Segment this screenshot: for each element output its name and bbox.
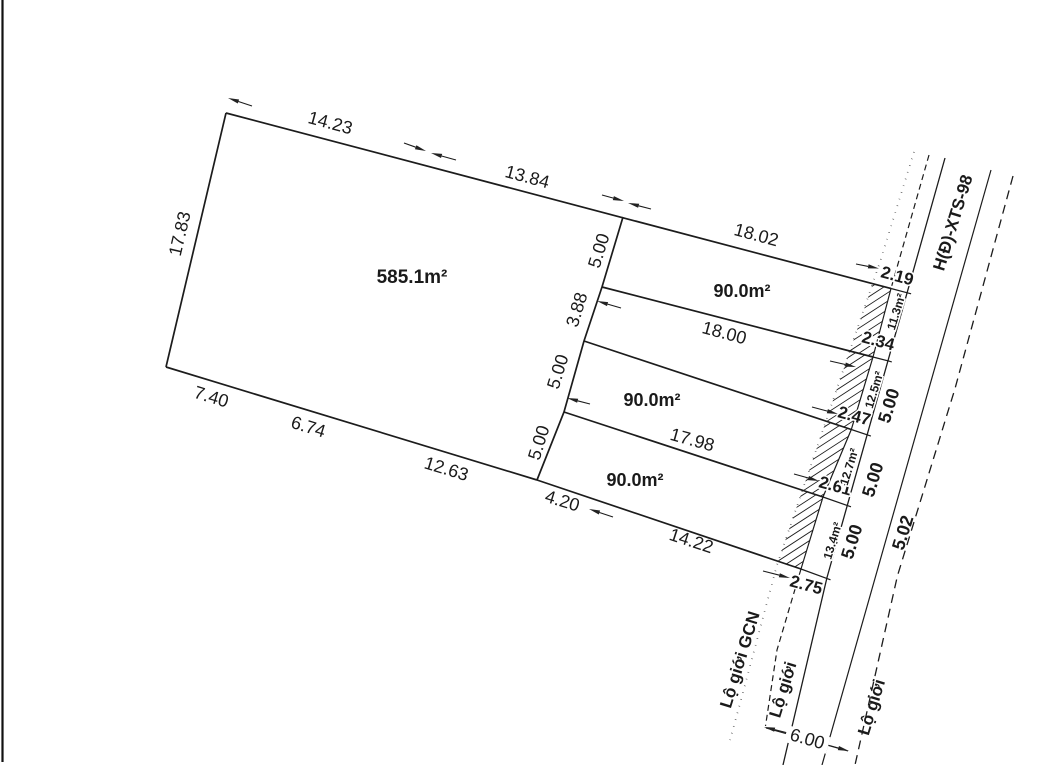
svg-text:90.0m²: 90.0m² — [606, 470, 663, 490]
svg-text:14.22: 14.22 — [667, 524, 716, 557]
svg-text:585.1m²: 585.1m² — [377, 267, 448, 288]
svg-text:6.00: 6.00 — [788, 724, 827, 753]
svg-text:17.98: 17.98 — [668, 424, 717, 455]
svg-text:14.23: 14.23 — [306, 107, 355, 138]
svg-text:90.0m²: 90.0m² — [623, 390, 680, 410]
svg-text:18.02: 18.02 — [732, 219, 781, 250]
svg-text:18.00: 18.00 — [700, 317, 749, 348]
svg-text:6.74: 6.74 — [289, 412, 328, 441]
svg-text:17.83: 17.83 — [165, 210, 195, 258]
svg-text:2.19: 2.19 — [879, 263, 916, 290]
svg-text:Lộ giới: Lộ giới — [854, 677, 889, 737]
svg-text:11.3m²: 11.3m² — [884, 292, 908, 332]
svg-text:4.20: 4.20 — [543, 486, 582, 515]
svg-text:5.00: 5.00 — [543, 352, 572, 391]
svg-text:7.40: 7.40 — [192, 382, 231, 411]
svg-text:5.00: 5.00 — [858, 460, 887, 499]
svg-text:2.34: 2.34 — [860, 328, 897, 355]
svg-text:Lộ giới GCN: Lộ giới GCN — [716, 609, 763, 710]
svg-text:90.0m²: 90.0m² — [713, 281, 770, 301]
svg-text:3.88: 3.88 — [562, 290, 591, 329]
svg-text:5.00: 5.00 — [524, 423, 553, 462]
